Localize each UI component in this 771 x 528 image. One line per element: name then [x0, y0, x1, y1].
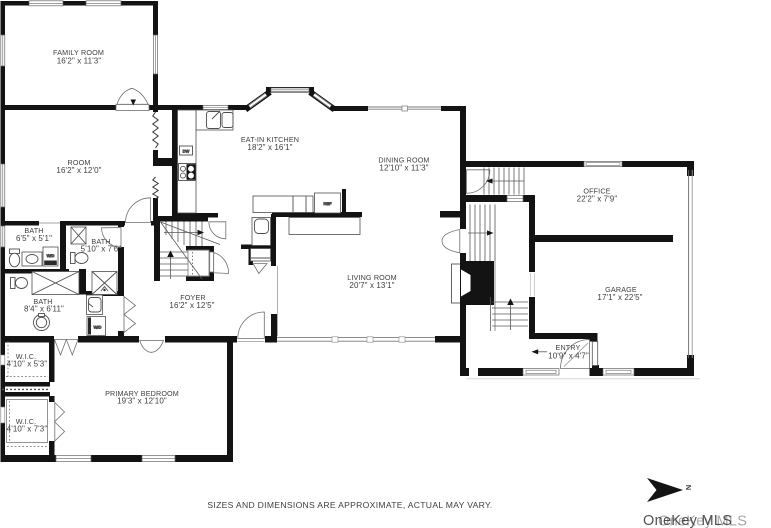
svg-text:4'10" x 7'3": 4'10" x 7'3" [7, 425, 48, 434]
svg-text:22'2" x 7'9": 22'2" x 7'9" [577, 195, 618, 204]
svg-text:18'2" x 16'1": 18'2" x 16'1" [247, 143, 292, 152]
svg-text:16'2" x 12'0": 16'2" x 12'0" [56, 166, 101, 175]
svg-text:4'10" x 5'3": 4'10" x 5'3" [7, 360, 48, 369]
svg-text:8'4" x 6'11": 8'4" x 6'11" [24, 305, 64, 314]
svg-text:N: N [684, 485, 693, 490]
svg-text:W/D: W/D [47, 253, 55, 258]
svg-text:19'3" x 12'10": 19'3" x 12'10" [117, 397, 167, 406]
svg-text:10'9" x 4'7": 10'9" x 4'7" [548, 352, 589, 361]
svg-text:16'2" x 12'5": 16'2" x 12'5" [169, 301, 214, 310]
svg-text:W/D: W/D [94, 325, 102, 330]
svg-text:20'7" x 13'1": 20'7" x 13'1" [349, 281, 394, 290]
svg-text:16'2" x 11'3": 16'2" x 11'3" [57, 56, 102, 65]
svg-text:5'10" x 7'6": 5'10" x 7'6" [81, 245, 122, 254]
svg-text:DW: DW [183, 149, 190, 154]
svg-text:6'5" x 5'1": 6'5" x 5'1" [16, 234, 52, 243]
svg-text:OneKey MLS: OneKey MLS [658, 514, 747, 528]
svg-text:SIZES AND DIMENSIONS ARE APPRO: SIZES AND DIMENSIONS ARE APPROXIMATE, AC… [207, 500, 492, 510]
svg-text:12'10" x 11'3": 12'10" x 11'3" [379, 164, 428, 173]
svg-text:17'1" x 22'5": 17'1" x 22'5" [597, 293, 642, 302]
svg-text:REF: REF [324, 201, 333, 206]
